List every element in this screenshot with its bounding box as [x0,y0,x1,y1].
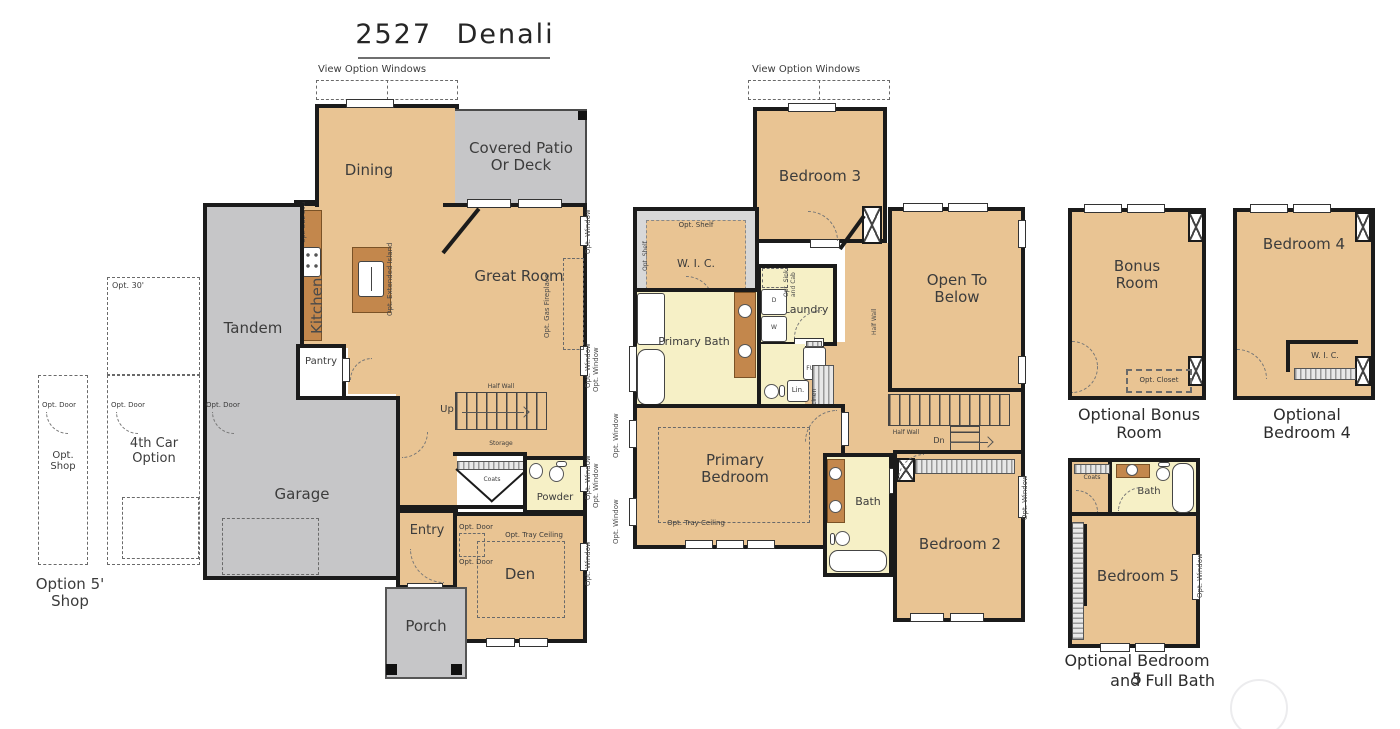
opt-shop-label: Opt. Shop [44,450,82,472]
floorplan-canvas: 2527 Denali View Option Windows Dining C… [0,0,1400,729]
opt-tray-ceiling-label: Opt. Tray Ceiling [660,520,732,528]
toilet-icon [1156,467,1170,481]
room-label-bedroom4: Bedroom 4 [1258,236,1350,253]
caption-bedroom5-line2: and Full Bath [1098,672,1215,690]
opt-window-label: Opt. Window [584,343,592,388]
closet-door [1355,212,1371,242]
caption-bonus: Optional Bonus Room [1060,406,1218,442]
window [486,638,515,647]
window [629,346,637,392]
closet-door [1355,356,1371,386]
toilet-icon [764,384,779,399]
window [518,199,562,208]
option-window-tick [819,80,820,100]
page-title: 2527 Denali [352,20,558,50]
sink-icon [1126,464,1138,476]
fireplace-outline [563,258,584,350]
patio-post [578,111,587,120]
room-label-powder: Powder [526,492,584,503]
linen-closet-label: Linen [811,389,818,405]
opt-window-label: Opt. Window [612,413,620,458]
opt-window-label: Opt. Window [612,499,620,544]
closet-shelf [1074,464,1110,474]
door-opening [841,412,849,446]
tub-icon [829,550,887,572]
fourth-car-label: 4th Car Option [117,437,191,466]
room-label-covered-patio: Covered Patio Or Deck [467,140,575,174]
toilet-icon [835,531,850,546]
window [1127,204,1165,213]
room-label-tandem: Tandem [210,320,296,337]
room-label-porch: Porch [395,618,457,635]
window [685,540,713,549]
opt-window-label: Opt. Window [584,455,592,500]
window [1084,204,1122,213]
stairs-arrow [462,412,524,413]
opt-shelf-label: Opt. Shelf [661,222,731,230]
window [788,103,836,112]
stairs-up-label: Up [436,404,458,415]
room-dining [315,104,459,207]
room-label-primary-bath: Primary Bath [658,336,730,348]
watermark-circle [1230,679,1288,729]
opt-tray-ceiling-label: Opt. Tray Ceiling [498,532,570,540]
room-label-bedroom2: Bedroom 2 [908,536,1012,553]
room-label-bonus: Bonus Room [1097,258,1177,292]
wic-label: W. I. C. [1296,352,1354,361]
opt-window-label: Opt. Window [584,209,592,254]
opt-door-label: Opt. Door [204,402,242,410]
stairs-down-label: Dn [928,437,950,446]
window [1293,204,1331,213]
title-underline [358,57,550,59]
window [910,613,944,622]
window [950,613,984,622]
tub-icon [1172,463,1194,513]
stairs-down [888,394,1010,426]
window [747,540,775,549]
room-label-bedroom5: Bedroom 5 [1092,568,1184,585]
linen-label: Lin. [788,387,808,395]
sink-icon [738,344,752,358]
wall-segment [1288,340,1358,344]
stairs-up [455,392,547,430]
coats-label: Coats [1074,475,1110,482]
wall-segment [453,452,527,456]
room-label-bedroom3: Bedroom 3 [775,168,865,185]
opt-cab-label: and Cab [790,272,797,297]
window [716,540,744,549]
opt-window-label: Opt. Window [592,347,600,392]
opt-door-label: Opt. Door [457,559,495,567]
dryer-label: D [761,298,787,305]
stove-icon [302,247,321,277]
opt-30-outline [107,277,200,375]
room-pantry [296,344,346,400]
window [1018,356,1026,384]
room-label-garage: Garage [262,486,342,503]
window [519,638,548,647]
toilet-tank [779,385,785,397]
opt-door-outline [459,533,485,557]
window [1018,220,1026,248]
window [629,420,637,448]
view-option-windows-label: View Option Windows [318,64,458,75]
opt-window-label: Opt. Window [1196,553,1204,598]
opt-gas-fireplace-label: Opt. Gas Fireplace [543,274,551,338]
window [948,203,988,212]
tray-ceiling-outline [477,541,565,618]
closet-wall [455,468,492,502]
washer-label: W [761,325,787,332]
room-label-entry: Entry [399,524,455,539]
sink-icon [358,261,384,297]
room-label-open-to-below: Open To Below [921,272,993,306]
room-label-pantry: Pantry [299,356,343,367]
window [629,498,637,526]
closet-wall [490,469,527,503]
option-window-tick [387,80,388,100]
wall-segment [1084,524,1087,606]
opt-sink-label: Opt. Sink [783,270,790,297]
opt-window-label: Opt. Window [592,463,600,508]
closet-door [862,206,882,244]
toilet-icon [549,466,564,482]
garage-door-outline [222,518,319,575]
sink-icon [529,463,543,479]
opt-door-label: Opt. Door [109,402,147,410]
coats-label: Coats [468,477,516,484]
hall-floor [845,243,890,405]
window [467,199,511,208]
closet-shelf [915,459,1015,474]
fourth-car-door-outline [122,497,199,559]
sink-icon [829,467,842,480]
door-opening [342,358,350,382]
opt-door-label: Opt. Door [457,524,495,532]
opt-30-label: Opt. 30' [112,282,154,291]
closet-shelf [1294,368,1356,380]
opt-closet-label: Opt. Closet [1130,377,1188,385]
opt-door-label: Opt. Door [40,402,78,410]
half-wall-label: Half Wall [477,384,525,391]
room-label-dining: Dining [333,162,405,179]
tray-ceiling-outline [658,427,810,523]
tub-icon [637,349,665,405]
wall-segment [1021,388,1025,454]
window [903,203,943,212]
sink-icon [738,304,752,318]
room-label-bath2: Bath [846,496,890,508]
sink-icon [829,500,842,513]
porch-post [386,664,397,675]
wall-segment [1286,340,1290,372]
closet-shelf [1072,522,1084,640]
window [346,99,394,108]
storage-label: Storage [463,441,539,448]
room-label-wic: W. I. C. [664,258,728,270]
opt-window-label: Opt. Window [1021,475,1029,520]
window [1250,204,1288,213]
half-wall-label: Half Wall [884,430,928,437]
opt-window-label: Opt. Window [584,541,592,586]
option-5-shop-caption: Option 5' Shop [28,576,112,610]
room-label-kitchen: Kitchen [308,278,326,334]
closet-door [1188,212,1204,242]
view-option-windows-label: View Option Windows [752,64,892,75]
opt-shelf-label: Opt. Shelf [642,241,649,271]
half-wall-label: Half Wall [871,309,878,335]
opt-extended-island-label: Opt. Extended Island [386,243,394,316]
caption-bedroom4: Optional Bedroom 4 [1238,406,1376,442]
porch-post [451,664,462,675]
